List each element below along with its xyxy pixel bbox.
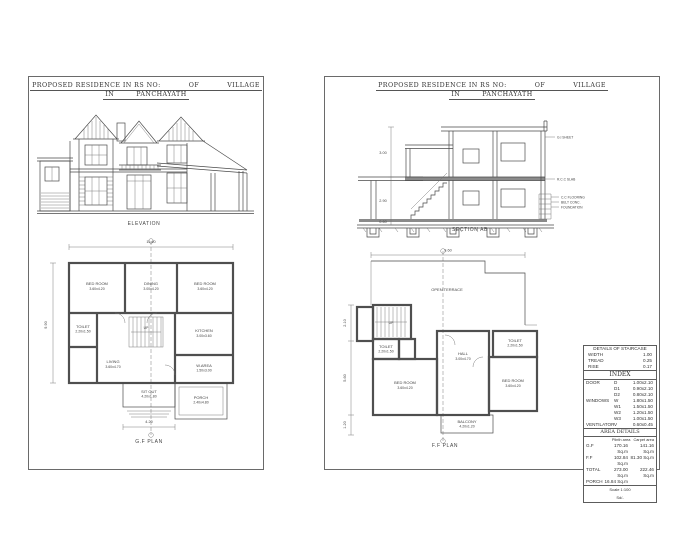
cell: RISE xyxy=(588,364,599,370)
room-label: TOILET xyxy=(76,324,90,329)
room-label: BED ROOM xyxy=(502,378,524,383)
title-text: OF xyxy=(533,82,547,91)
cell: F.F xyxy=(586,455,602,467)
gf-plan-drawing: 11.40 9.90 4.20 UP BED ROOM 3.60x4.20 DI… xyxy=(37,235,252,440)
material-note: R.C.C SLAB xyxy=(557,178,576,182)
title-text: PROPOSED RESIDENCE IN RS NO: xyxy=(30,82,163,91)
room-size: 3.60x4.20 xyxy=(89,287,104,291)
group-label: DOOR xyxy=(584,380,614,398)
cell: 141.16 Sq.m xyxy=(628,443,654,455)
room-label: TOILET xyxy=(508,338,522,343)
room-label: KITCHEN xyxy=(195,328,213,333)
title-text: VILLAGE xyxy=(225,82,262,91)
room-size: 4.20x1.80 xyxy=(141,395,156,399)
room-label: TOILET xyxy=(379,344,393,349)
title-text: VILLAGE xyxy=(571,82,608,91)
dim-label: 2.10 xyxy=(343,319,347,326)
room-size: 3.00x3.60 xyxy=(196,334,211,338)
cell: 273.00 Sq.m xyxy=(602,467,628,479)
index-group-windows: WINDOWS W1.80x1.50 W11.50x1.50 W21.20x1.… xyxy=(584,398,656,422)
cell: 170.16 Sq.m xyxy=(602,443,628,455)
group-items: W1.80x1.50 W11.50x1.50 W21.20x1.50 W31.0… xyxy=(614,398,656,422)
ff-plan-drawing: 9.60 2.10 5.60 1.20 UP OPEN TERRACE TOIL… xyxy=(337,245,552,445)
room-label: OPEN TERRACE xyxy=(431,287,463,292)
group-label: VENTILATOR xyxy=(584,422,614,428)
elevation-label: ELEVATION xyxy=(89,221,199,227)
elevation-lines xyxy=(37,115,254,214)
cell: TOTAL xyxy=(586,467,602,479)
cell xyxy=(628,479,654,485)
gf-plan-lines xyxy=(50,239,233,438)
stair-up-label: UP xyxy=(144,326,149,330)
sheet-title: PROPOSED RESIDENCE IN RS NO:OFVILLAGE IN… xyxy=(325,82,659,100)
dim-label: 9.60 xyxy=(444,249,451,253)
section-lines xyxy=(357,121,559,237)
dim-label: 9.90 xyxy=(44,321,48,328)
cell: 0.60x0.45 xyxy=(633,422,653,428)
title-text: IN xyxy=(103,91,116,100)
title-line-1: PROPOSED RESIDENCE IN RS NO:OFVILLAGE xyxy=(29,82,263,91)
dim-label: 5.60 xyxy=(343,374,347,381)
title-blank xyxy=(201,83,225,91)
cell: 222.46 Sq.m xyxy=(628,467,654,479)
title-text: PANCHAYATH xyxy=(480,91,534,100)
material-note: C.C FLOORING xyxy=(561,196,585,200)
room-label: BED ROOM xyxy=(394,380,416,385)
title-text: PANCHAYATH xyxy=(134,91,188,100)
stair-up-label: UP xyxy=(389,321,394,325)
room-size: 3.60x4.20 xyxy=(197,287,212,291)
material-note: G.I SHEET xyxy=(557,136,573,140)
room-label: LIVING xyxy=(106,359,119,364)
room-label: HALL xyxy=(458,351,469,356)
index-group-door: DOOR D1.00x2.10 D10.90x2.10 D20.80x2.10 xyxy=(584,380,656,398)
room-size: 3.60x4.20 xyxy=(505,384,520,388)
table-row: G.F170.16 Sq.m141.16 Sq.m xyxy=(584,443,656,455)
room-size: 2.20x1.50 xyxy=(75,330,90,334)
room-size: 2.20x1.50 xyxy=(507,344,522,348)
dim-label: 11.40 xyxy=(146,240,155,244)
room-size: 4.20x1.20 xyxy=(459,425,474,429)
room-label: BED ROOM xyxy=(86,281,108,286)
room-label: PORCH xyxy=(194,395,209,400)
title-blank xyxy=(116,92,134,100)
room-size: 2.20x1.50 xyxy=(378,350,393,354)
gf-plan-label: G.F PLAN xyxy=(94,439,204,445)
room-size: 3.60x4.20 xyxy=(397,386,412,390)
signature-note: Sd/- xyxy=(584,494,656,502)
material-note: FOUNDATION xyxy=(561,206,583,210)
dim-label: 0.60 xyxy=(379,220,386,224)
cell: 0.17 xyxy=(643,364,652,370)
dim-label: 4.20 xyxy=(145,420,152,424)
scale-note: Scale 1:100 xyxy=(584,485,656,494)
table-row: PORCH16.84 Sq.m xyxy=(584,479,656,485)
title-blank xyxy=(163,83,187,91)
room-label: DINING xyxy=(144,281,158,286)
dim-label: 2.90 xyxy=(379,199,386,203)
sheet-right: PROPOSED RESIDENCE IN RS NO:OFVILLAGE IN… xyxy=(324,76,660,470)
table-row: F.F102.84 Sq.m81.30 Sq.m xyxy=(584,455,656,467)
sheet-title: PROPOSED RESIDENCE IN RS NO:OFVILLAGE IN… xyxy=(29,82,263,100)
sheet-left: PROPOSED RESIDENCE IN RS NO:OFVILLAGE IN… xyxy=(28,76,264,470)
room-size: 2.40x4.80 xyxy=(193,401,208,405)
group-label: WINDOWS xyxy=(584,398,614,422)
table-row: V0.60x0.45 xyxy=(614,422,653,428)
room-size: 3.60x4.70 xyxy=(105,365,120,369)
cell: 81.30 Sq.m xyxy=(628,455,654,467)
title-blank xyxy=(462,92,480,100)
index-table: DETAILS OF STAIRCASE WIDTH1.00 TREAD0.25… xyxy=(583,345,657,503)
room-label: BED ROOM xyxy=(194,281,216,286)
index-group-ventilator: VENTILATOR V0.60x0.45 xyxy=(584,422,656,428)
cell: 16.84 Sq.m xyxy=(602,479,628,485)
room-label: BALCONY xyxy=(457,419,476,424)
section-label: SECTION AB xyxy=(415,227,525,233)
title-blank xyxy=(509,83,533,91)
ff-plan-label: F.F PLAN xyxy=(400,443,490,449)
cell: PORCH xyxy=(586,479,602,485)
material-note: BELT CONC. xyxy=(561,201,581,205)
drawing-canvas: { "title": { "line1_left": "PROPOSED RES… xyxy=(0,0,680,544)
title-line-2: INPANCHAYATH xyxy=(29,91,263,100)
cell: 102.84 Sq.m xyxy=(602,455,628,467)
title-blank xyxy=(547,83,571,91)
room-size: 3.00x4.70 xyxy=(455,357,470,361)
index-title: INDEX xyxy=(584,370,656,380)
title-text: OF xyxy=(187,82,201,91)
group-items: V0.60x0.45 xyxy=(614,422,656,428)
cell: V xyxy=(614,422,617,428)
area-details-title: AREA DETAILS xyxy=(584,428,656,437)
room-label: SIT OUT xyxy=(141,389,157,394)
title-line-2: INPANCHAYATH xyxy=(325,91,659,100)
ff-plan-texts: 9.60 2.10 5.60 1.20 UP OPEN TERRACE TOIL… xyxy=(343,249,524,429)
dim-label: 1.20 xyxy=(343,421,347,428)
title-line-1: PROPOSED RESIDENCE IN RS NO:OFVILLAGE xyxy=(325,82,659,91)
group-items: D1.00x2.10 D10.90x2.10 D20.80x2.10 xyxy=(614,380,656,398)
room-size: 3.00x4.20 xyxy=(143,287,158,291)
room-label: W.AREA xyxy=(196,363,212,368)
elevation-drawing xyxy=(35,107,256,219)
title-text: IN xyxy=(449,91,462,100)
dim-label: 3.00 xyxy=(379,151,386,155)
cell: G.F xyxy=(586,443,602,455)
staircase-details: DETAILS OF STAIRCASE WIDTH1.00 TREAD0.25… xyxy=(584,346,656,370)
table-row: TOTAL273.00 Sq.m222.46 Sq.m xyxy=(584,467,656,479)
room-size: 1.50x3.00 xyxy=(196,369,211,373)
title-text: PROPOSED RESIDENCE IN RS NO: xyxy=(376,82,509,91)
